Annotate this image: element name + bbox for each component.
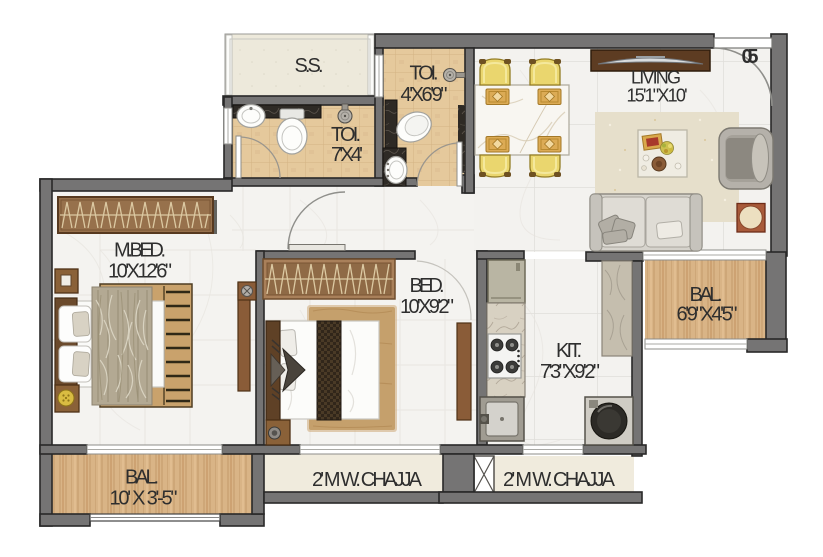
svg-text:15'1"X10': 15'1"X10' — [627, 86, 688, 106]
svg-text:BED.: BED. — [410, 275, 445, 297]
svg-text:KIT.: KIT. — [556, 340, 582, 362]
svg-text:10' X 3'-5": 10' X 3'-5" — [110, 488, 178, 510]
svg-text:BAL.: BAL. — [125, 467, 159, 489]
svg-text:4'X6'9": 4'X6'9" — [401, 84, 448, 106]
svg-text:6'9"X4'5": 6'9"X4'5" — [677, 304, 738, 326]
svg-text:7'3"X9'2": 7'3"X9'2" — [540, 361, 600, 383]
svg-text:10'X12'6": 10'X12'6" — [108, 261, 172, 283]
svg-text:S.S.: S.S. — [295, 55, 324, 77]
svg-text:7'X4': 7'X4' — [331, 144, 363, 166]
svg-text:05: 05 — [742, 46, 759, 68]
svg-text:TOI.: TOI. — [410, 63, 439, 85]
svg-text:2' M W. CHAJJA: 2' M W. CHAJJA — [312, 469, 423, 491]
svg-text:M.BED.: M.BED. — [114, 240, 166, 262]
svg-text:2' M W. CHAJJA: 2' M W. CHAJJA — [503, 469, 616, 491]
svg-text:TOI.: TOI. — [331, 124, 361, 146]
svg-text:LIVING: LIVING — [631, 68, 681, 88]
svg-text:10'X9'2": 10'X9'2" — [400, 296, 454, 318]
